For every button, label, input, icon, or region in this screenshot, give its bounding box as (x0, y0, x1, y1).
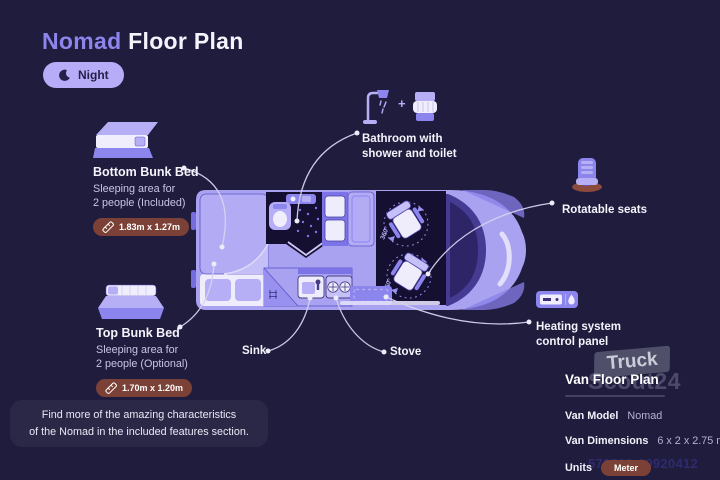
callout-desc-line: Sleeping area for (96, 343, 192, 357)
dimensions-value: 1.83m x 1.27m (119, 222, 180, 232)
ruler-icon (102, 221, 114, 233)
toilet-icon (412, 91, 438, 123)
feature-label: Rotatable seats (562, 203, 647, 218)
kitchen-stove (326, 276, 352, 298)
side-skirt-highlight (340, 301, 440, 305)
callout-bottom-bunk: Bottom Bunk Bed Sleeping area for 2 peop… (93, 118, 199, 238)
feature-label-line: Bathroom with (362, 132, 457, 147)
van-details-panel: Van Floor Plan Van Model Nomad Van Dimen… (565, 372, 715, 476)
callout-title: Bottom Bunk Bed (93, 165, 199, 179)
callout-top-bunk: Top Bunk Bed Sleeping area for 2 people … (96, 283, 192, 399)
swivel-seat-icon (568, 156, 606, 194)
dimensions-badge: 1.83m x 1.27m (93, 218, 189, 236)
bed-pillow (234, 278, 262, 302)
night-mode-badge[interactable]: Night (43, 62, 124, 88)
dinette-table (348, 192, 374, 246)
dinette-seats (322, 192, 348, 246)
details-panel-rule (565, 395, 665, 397)
callout-desc-line: Sleeping area for (93, 182, 199, 196)
detail-label: Van Dimensions (565, 435, 648, 447)
ruler-icon (105, 382, 117, 394)
heating-panel-icon (536, 291, 578, 308)
footer-note-line: of the Nomad in the included features se… (10, 424, 268, 441)
detail-value: 6 x 2 x 2.75 m (657, 435, 720, 447)
footer-note: Find more of the amazing characteristics… (10, 400, 268, 447)
detail-value: Nomad (627, 410, 662, 422)
bed-pillow (204, 278, 232, 302)
callout-desc-line: 2 people (Optional) (96, 357, 192, 371)
bunk-bed-icon (93, 118, 161, 160)
details-row-model: Van Model Nomad (565, 410, 715, 422)
kitchen-area (264, 268, 352, 306)
callout-rotatable-seats: Rotatable seats (562, 156, 647, 218)
callout-title: Top Bunk Bed (96, 326, 192, 340)
callout-bathroom: + Bathroom with shower and toilet (362, 88, 457, 162)
details-panel-title: Van Floor Plan (565, 372, 715, 387)
toilet-topview (269, 202, 291, 230)
bunk-bed-icon (96, 283, 166, 321)
night-badge-label: Night (78, 68, 109, 82)
page-title: Nomad Floor Plan (42, 28, 244, 55)
plus-sign: + (398, 96, 406, 111)
van-floorplan-illustration: 360° 360° (190, 186, 534, 314)
floor-plan-infographic: Nomad Floor Plan Night (0, 0, 720, 480)
label-stove: Stove (390, 346, 421, 358)
dimensions-value: 1.70m x 1.20m (122, 383, 183, 393)
page-title-brand: Nomad (42, 28, 121, 54)
feature-label-line: shower and toilet (362, 147, 457, 162)
label-sink: Sink (242, 345, 266, 357)
feature-label-line: control panel (536, 335, 621, 350)
detail-label: Van Model (565, 410, 618, 422)
feature-label-line: Heating system (536, 320, 621, 335)
dimensions-badge: 1.70m x 1.20m (96, 379, 192, 397)
shower-icon (362, 88, 392, 126)
kitchen-sink (298, 276, 324, 298)
callout-desc-line: 2 people (Included) (93, 196, 199, 210)
units-meter-badge[interactable]: Meter (601, 460, 651, 476)
details-row-dimensions: Van Dimensions 6 x 2 x 2.75 m (565, 435, 715, 447)
page-title-rest: Floor Plan (128, 28, 243, 54)
moon-icon (58, 69, 71, 82)
footer-note-line: Find more of the amazing characteristics (10, 407, 268, 424)
detail-label: Units (565, 462, 592, 474)
callout-heating: Heating system control panel (536, 291, 621, 350)
details-row-units: Units Meter (565, 460, 715, 476)
rear-bed-area (200, 194, 268, 306)
